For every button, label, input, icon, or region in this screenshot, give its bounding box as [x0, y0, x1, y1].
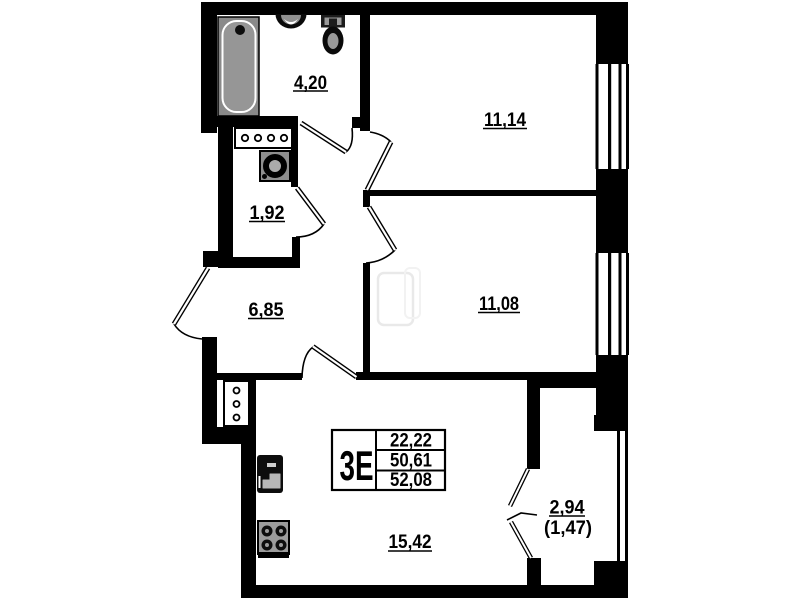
svg-text:15,42: 15,42 [389, 532, 432, 553]
svg-text:50,61: 50,61 [390, 451, 432, 472]
svg-text:22,22: 22,22 [390, 431, 432, 452]
svg-text:3Е: 3Е [340, 442, 374, 489]
svg-text:(1,47): (1,47) [544, 518, 592, 539]
svg-text:52,08: 52,08 [390, 470, 432, 491]
